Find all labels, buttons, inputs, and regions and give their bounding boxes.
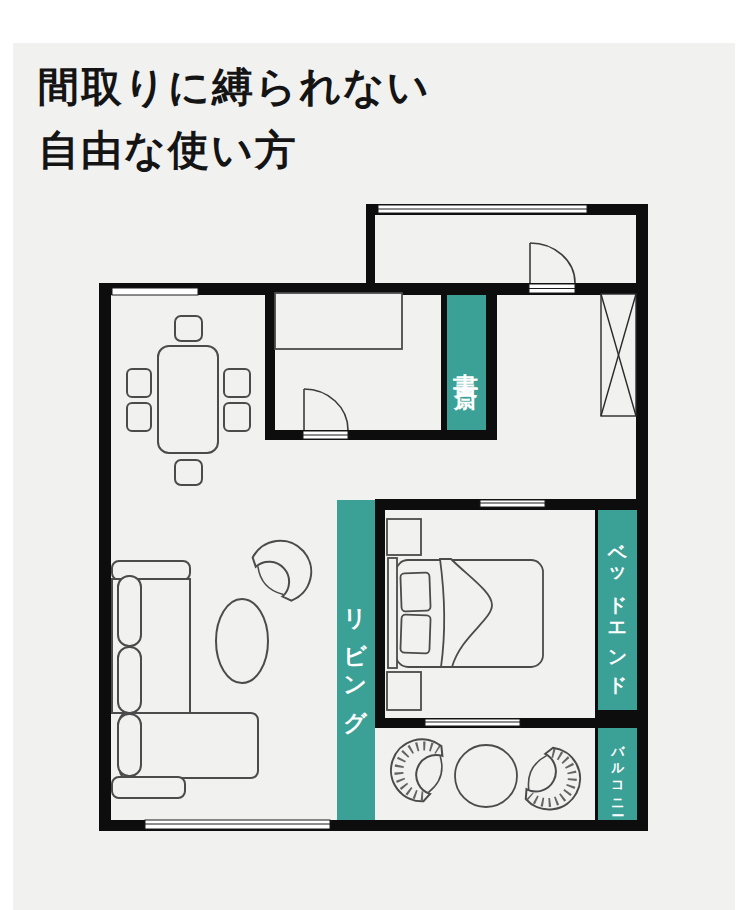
dining-chair-icon	[224, 369, 250, 397]
dining-chair-icon	[224, 403, 250, 431]
double-bed-icon	[388, 558, 543, 668]
dining-table-icon	[158, 346, 218, 453]
closet-x-icon	[601, 294, 636, 416]
pillow-icon	[400, 615, 430, 654]
door-swing-icon	[529, 243, 575, 293]
dining-chair-icon	[127, 369, 151, 397]
kitchen-counter-icon	[275, 293, 402, 349]
dining-set	[127, 316, 250, 485]
label-living: リビング	[337, 500, 375, 820]
wall-outer-right	[636, 204, 648, 831]
dining-chair-icon	[175, 460, 202, 485]
wall-entry-left	[366, 204, 375, 292]
label-study: 書斎	[447, 295, 486, 430]
armchair-icon	[245, 528, 324, 608]
door-swing-icon	[303, 389, 348, 439]
balcony-table-icon	[455, 745, 517, 807]
wall-outer-left	[99, 283, 111, 831]
floorplan-drawing	[0, 0, 750, 910]
pillow-icon	[400, 572, 430, 611]
wall-study-right	[486, 283, 497, 440]
wall-bedroom-left	[375, 499, 385, 728]
balcony-furniture	[383, 731, 591, 820]
dining-chair-icon	[127, 403, 151, 431]
wall-study-bottom	[265, 430, 497, 440]
label-bed-end: ベッドエンド	[598, 510, 637, 710]
wall-bedend-filler	[595, 710, 648, 728]
nightstand-icon	[387, 672, 421, 710]
page: { "page": { "background": "#ffffff", "pa…	[0, 0, 750, 910]
nightstand-icon	[387, 519, 421, 555]
label-balcony: バルコニー	[598, 728, 637, 820]
balcony-chair-icon	[383, 731, 450, 806]
coffee-table-icon	[216, 599, 268, 683]
dining-chair-icon	[175, 316, 202, 341]
bedroom-furniture	[387, 519, 543, 710]
window-icon	[112, 288, 198, 295]
balcony-chair-icon	[517, 742, 591, 820]
wall-study-left	[265, 283, 275, 440]
